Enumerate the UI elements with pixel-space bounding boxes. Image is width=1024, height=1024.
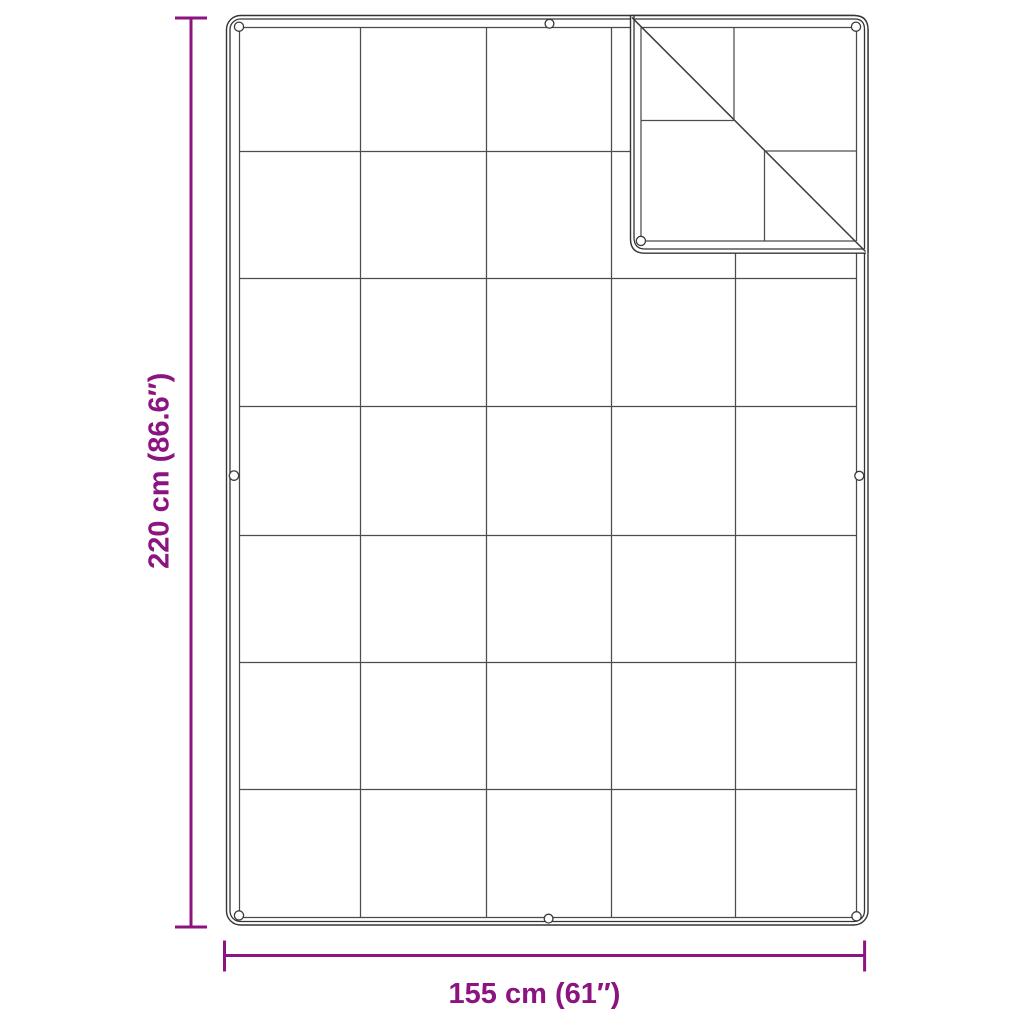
svg-text:220 cm (86.6″): 220 cm (86.6″): [144, 373, 176, 569]
svg-text:155 cm (61″): 155 cm (61″): [449, 978, 621, 1010]
